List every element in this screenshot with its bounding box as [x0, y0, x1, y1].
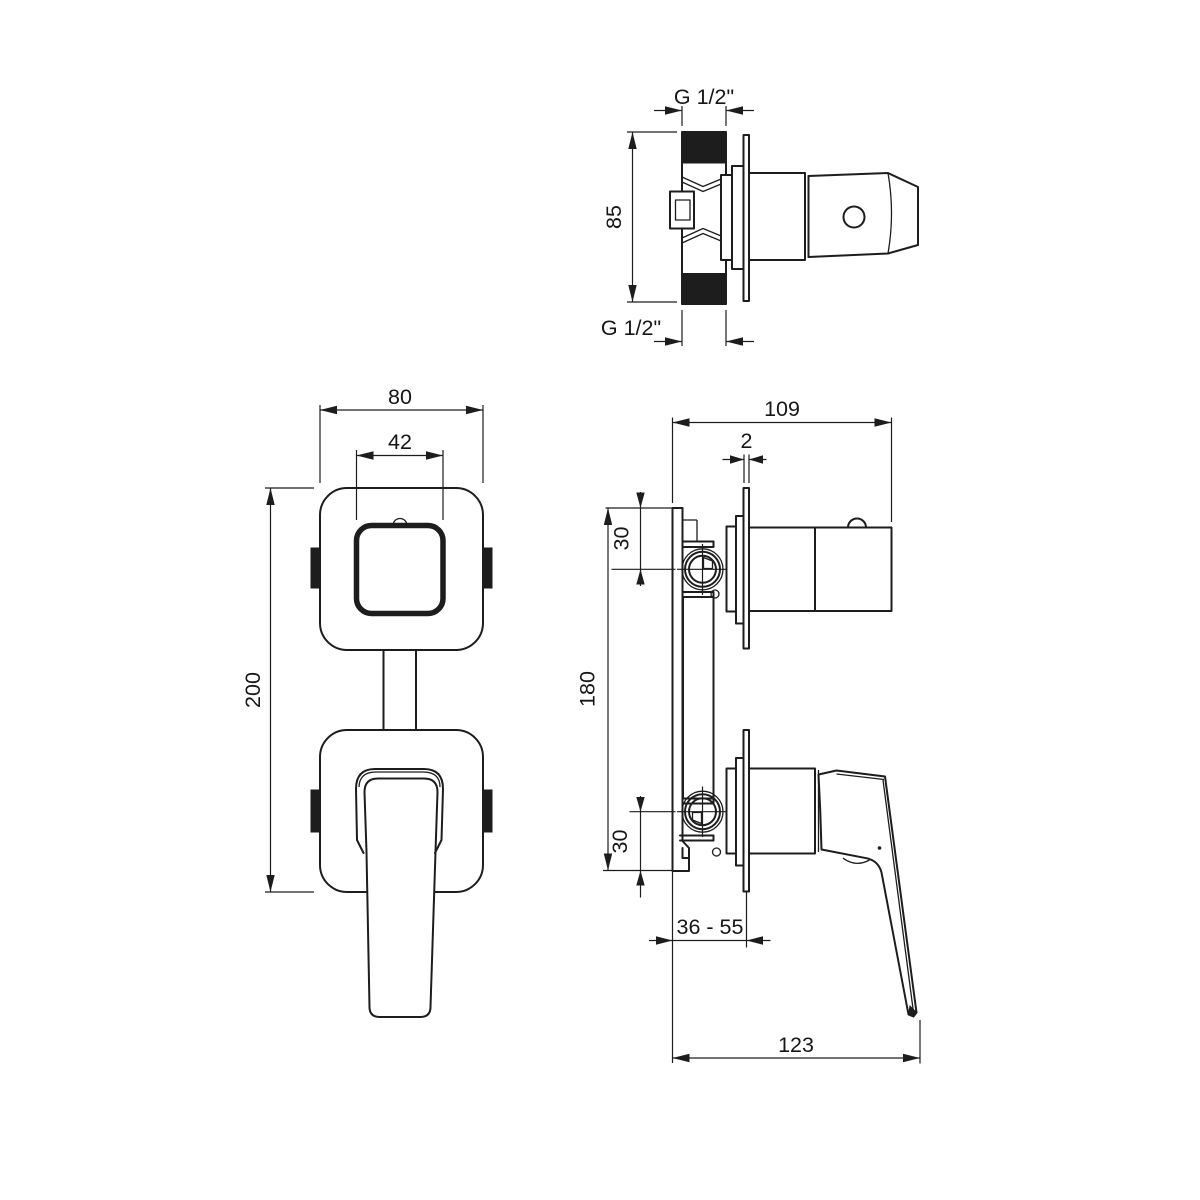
arrowhead — [628, 285, 636, 302]
thread-section-bottom — [683, 274, 725, 304]
lower-fitting-ledge-bottom — [680, 836, 714, 841]
arrowhead — [357, 451, 374, 459]
mixer-lever-handle — [365, 779, 438, 1018]
dim-wall-range: 36 - 55 — [649, 871, 771, 1063]
dim-spacing-180: 180 — [576, 508, 672, 871]
upper-fitting-screw — [711, 590, 719, 598]
dim-offset-30-lower: 30 — [608, 796, 676, 898]
dim-label-36-55: 36 - 55 — [677, 915, 744, 939]
upper-escutcheon-plate — [320, 488, 483, 650]
control-knob — [809, 173, 919, 257]
arrowhead — [726, 337, 743, 345]
lower-flange-step-1 — [727, 769, 737, 854]
arrowhead — [665, 337, 682, 345]
arrowhead — [636, 493, 644, 509]
lever-detail-dot — [878, 847, 881, 850]
dim-height-85: 85 — [602, 132, 677, 302]
dim-label-thread-top: G 1/2" — [674, 85, 734, 109]
dim-thread-top: G 1/2" — [654, 85, 754, 126]
dim-label-thread-bottom: G 1/2" — [601, 316, 661, 340]
upper-fitting-ledge-bottom — [683, 592, 714, 597]
upper-flange-step-2 — [736, 516, 744, 624]
extension-lines — [682, 310, 726, 346]
lower-flange-step-2 — [736, 758, 744, 866]
dim-depth-109: 109 — [673, 397, 892, 522]
technical-drawing-page: G 1/2" 85 G 1/2" — [0, 0, 1200, 1200]
arrowhead — [749, 455, 763, 463]
arrowhead — [466, 406, 483, 414]
extension-lines — [673, 418, 892, 523]
dim-label-200: 200 — [241, 672, 265, 708]
connecting-pipe — [384, 650, 417, 730]
dim-label-42: 42 — [388, 430, 412, 454]
upper-fitting-ledge-top — [683, 542, 714, 548]
dim-label-80: 80 — [388, 385, 412, 409]
arrowhead — [673, 1054, 690, 1062]
arrowhead — [628, 132, 636, 149]
dim-label-180: 180 — [576, 671, 600, 707]
upper-flange-step-1 — [727, 527, 737, 612]
extension-lines — [265, 488, 314, 892]
extension-lines — [682, 106, 726, 126]
lower-fitting-screw — [713, 848, 721, 856]
arrowhead — [426, 451, 443, 459]
arrowhead — [636, 797, 644, 812]
dim-thread-bottom: G 1/2" — [601, 310, 754, 346]
front-view: 80 42 200 — [241, 385, 492, 1017]
upper-crosshair — [677, 544, 729, 595]
valve-body — [749, 173, 805, 260]
side-assembly-view: 109 2 30 180 — [576, 397, 921, 1064]
dim-label-109: 109 — [764, 397, 800, 421]
dim-handle-reach-123: 123 — [673, 1020, 921, 1064]
dim-label-123: 123 — [778, 1033, 814, 1057]
riser-pipe — [683, 597, 714, 799]
bracket-step — [683, 520, 698, 542]
upper-knob-button-bump — [848, 519, 866, 528]
flange-step-2 — [732, 166, 744, 269]
arrowhead — [604, 508, 612, 525]
dim-label-30-upper: 30 — [610, 527, 634, 551]
arrowhead — [730, 455, 744, 463]
arrowhead — [320, 406, 337, 414]
dim-label-85: 85 — [602, 205, 626, 229]
arrowhead — [656, 936, 673, 944]
upper-valve-detail-view: G 1/2" 85 G 1/2" — [601, 85, 918, 346]
arrowhead — [266, 488, 274, 505]
arrowhead — [673, 418, 690, 426]
arrowhead — [636, 871, 644, 886]
extension-lines — [673, 871, 747, 1063]
dim-label-30-lower: 30 — [608, 830, 632, 854]
arrowhead — [266, 875, 274, 892]
dim-plate-thickness-2: 2 — [723, 429, 767, 483]
lower-crosshair — [677, 787, 729, 838]
lower-valve-body — [749, 769, 815, 854]
dim-label-2: 2 — [741, 429, 753, 453]
dim-offset-30-upper: 30 — [606, 492, 676, 586]
flange-step-1 — [721, 175, 732, 260]
arrowhead — [903, 1054, 920, 1062]
arrowhead — [875, 418, 892, 426]
lower-lever-handle — [819, 771, 917, 1017]
mixer-valve-drawing: G 1/2" 85 G 1/2" — [0, 0, 1200, 1200]
dim-height-200: 200 — [241, 488, 314, 892]
arrowhead — [636, 569, 644, 584]
arrowhead — [604, 854, 612, 871]
upper-valve-body — [749, 528, 815, 612]
arrowhead — [747, 936, 764, 944]
extension-lines — [744, 455, 749, 484]
thread-section-top — [683, 133, 725, 164]
upper-control-knob — [815, 528, 892, 612]
